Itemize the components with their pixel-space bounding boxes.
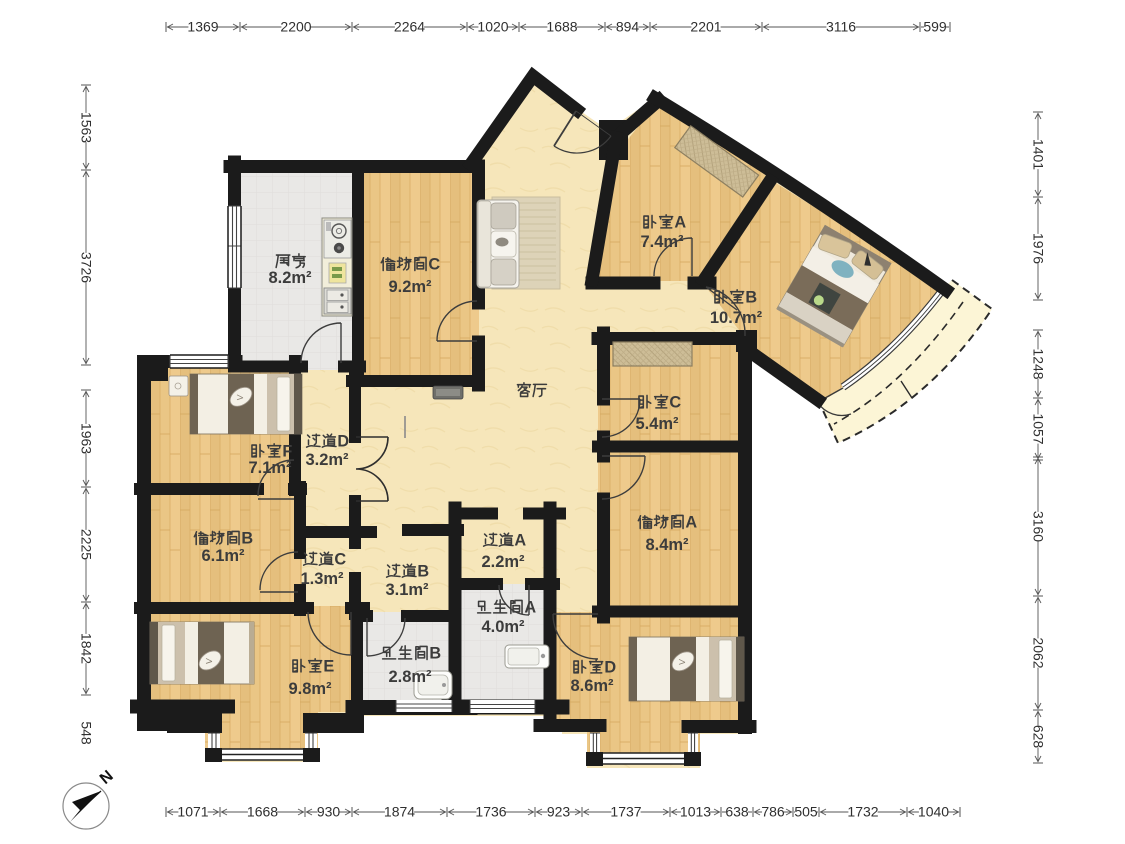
svg-text:1040: 1040 [918, 804, 949, 820]
svg-text:10.7m²: 10.7m² [710, 309, 763, 327]
svg-text:C: C [428, 256, 440, 274]
svg-text:1057: 1057 [1031, 413, 1047, 444]
svg-text:3726: 3726 [79, 252, 95, 283]
svg-text:B: B [429, 645, 441, 663]
svg-text:2.8m²: 2.8m² [388, 668, 432, 686]
svg-text:A: A [514, 532, 526, 550]
svg-text:C: C [669, 394, 681, 412]
svg-text:5.4m²: 5.4m² [635, 415, 679, 433]
svg-text:1732: 1732 [847, 804, 878, 820]
svg-text:923: 923 [547, 804, 571, 820]
svg-text:1976: 1976 [1031, 233, 1047, 264]
svg-text:A: A [685, 514, 697, 532]
svg-text:8.6m²: 8.6m² [570, 677, 614, 695]
svg-text:7.4m²: 7.4m² [640, 233, 684, 251]
svg-text:2200: 2200 [280, 19, 311, 35]
svg-text:1963: 1963 [79, 423, 95, 454]
svg-text:1248: 1248 [1031, 348, 1047, 379]
svg-text:1563: 1563 [79, 112, 95, 143]
svg-text:2.2m²: 2.2m² [481, 553, 525, 571]
svg-text:B: B [417, 563, 429, 581]
svg-text:2201: 2201 [690, 19, 721, 35]
svg-text:894: 894 [616, 19, 640, 35]
svg-text:2062: 2062 [1031, 637, 1047, 668]
svg-text:3116: 3116 [826, 19, 856, 35]
svg-text:C: C [334, 551, 346, 569]
svg-text:1013: 1013 [680, 804, 711, 820]
svg-text:638: 638 [725, 804, 749, 820]
svg-text:D: D [337, 433, 349, 451]
svg-text:1874: 1874 [384, 804, 415, 820]
svg-text:548: 548 [79, 721, 95, 745]
svg-text:1401: 1401 [1031, 139, 1047, 170]
svg-text:1071: 1071 [177, 804, 208, 820]
svg-text:1369: 1369 [187, 19, 218, 35]
svg-text:2225: 2225 [79, 529, 95, 560]
svg-text:1668: 1668 [247, 804, 278, 820]
svg-text:1688: 1688 [546, 19, 577, 35]
svg-text:3160: 3160 [1031, 511, 1047, 542]
svg-text:9.2m²: 9.2m² [388, 278, 432, 296]
svg-text:8.2m²: 8.2m² [268, 269, 312, 287]
svg-text:9.8m²: 9.8m² [288, 680, 332, 698]
svg-text:3.1m²: 3.1m² [385, 581, 429, 599]
svg-text:E: E [323, 658, 334, 676]
svg-text:2264: 2264 [394, 19, 425, 35]
svg-text:1.3m²: 1.3m² [300, 570, 344, 588]
svg-text:786: 786 [761, 804, 785, 820]
svg-text:D: D [604, 659, 616, 677]
svg-text:8.4m²: 8.4m² [645, 536, 689, 554]
svg-text:3.2m²: 3.2m² [305, 451, 349, 469]
svg-text:599: 599 [923, 19, 947, 35]
svg-text:505: 505 [794, 804, 818, 820]
svg-text:1020: 1020 [477, 19, 508, 35]
svg-text:A: A [524, 599, 536, 617]
svg-text:B: B [241, 530, 253, 548]
svg-text:B: B [745, 289, 757, 307]
svg-text:4.0m²: 4.0m² [481, 618, 525, 636]
svg-text:A: A [674, 214, 686, 232]
svg-text:1737: 1737 [610, 804, 641, 820]
svg-text:1736: 1736 [475, 804, 506, 820]
svg-text:6.1m²: 6.1m² [201, 547, 245, 565]
svg-text:628: 628 [1031, 725, 1047, 749]
svg-text:930: 930 [317, 804, 341, 820]
svg-text:7.1m²: 7.1m² [248, 459, 292, 477]
svg-text:1842: 1842 [79, 633, 95, 664]
